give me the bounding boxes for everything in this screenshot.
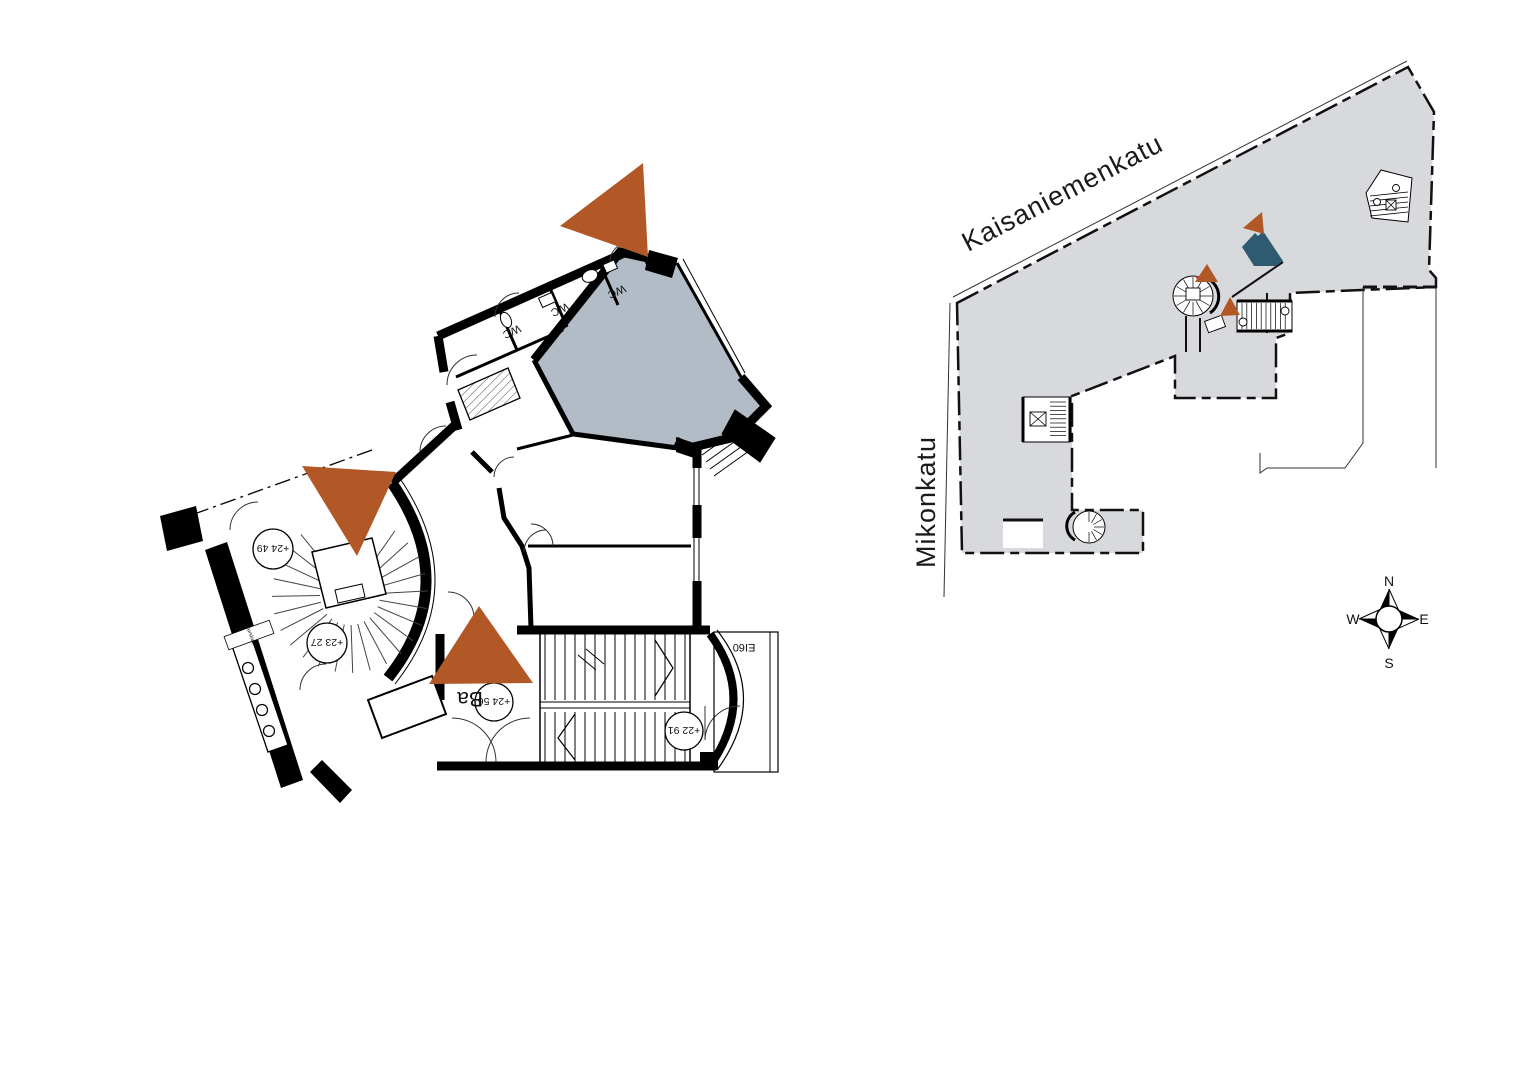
- floor-plan-drawing: EI60 jäteputket: [0, 0, 1536, 1086]
- compass-west-label: W: [1346, 611, 1360, 627]
- plan-sheet: EI60 jäteputket: [0, 0, 1536, 1086]
- straight-stair: [540, 630, 744, 770]
- orange-triangle-marker-middle: [302, 466, 396, 556]
- elevation-spiral-lower: +23 27: [311, 636, 344, 648]
- stair-core-left-wing: [1023, 397, 1070, 442]
- hatched-area: [458, 368, 520, 420]
- compass-north-label: N: [1384, 573, 1394, 589]
- site-courtyard-notch: [1003, 520, 1043, 548]
- detail-floor-plan: EI60 jäteputket: [160, 163, 778, 803]
- fire-rating-label: EI60: [733, 641, 756, 653]
- elevation-spiral-upper: +24 49: [257, 542, 290, 554]
- elevation-stair-half-landing: +22 91: [668, 724, 701, 736]
- street-label-mikonkatu: Mikonkatu: [911, 436, 941, 568]
- compass-east-label: E: [1419, 611, 1428, 627]
- stair-name-label: Ba: [457, 687, 483, 710]
- orange-triangle-marker-top: [560, 163, 648, 257]
- site-key-plan: Kaisaniemenkatu Mikonkatu N E S W: [911, 61, 1436, 671]
- vestibule: [368, 676, 446, 738]
- compass-south-label: S: [1384, 655, 1393, 671]
- orange-triangle-marker-bottom: [429, 606, 533, 684]
- compass-rose: N E S W: [1346, 573, 1428, 671]
